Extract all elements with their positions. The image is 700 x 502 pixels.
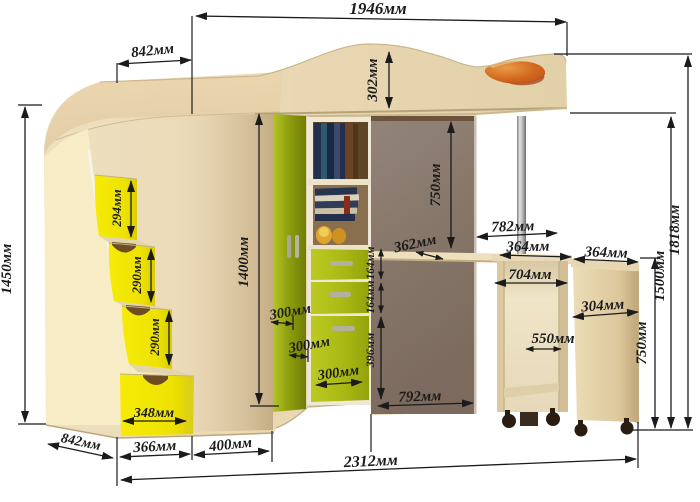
svg-text:290мм: 290мм [129,256,144,294]
svg-text:2312мм: 2312мм [342,452,398,471]
svg-text:364мм: 364мм [583,244,628,262]
svg-text:1450мм: 1450мм [0,244,15,295]
svg-text:304мм: 304мм [580,297,625,316]
svg-text:302мм: 302мм [365,58,381,102]
svg-text:1500мм: 1500мм [652,251,668,302]
svg-text:164мм: 164мм [365,246,377,279]
svg-text:704мм: 704мм [508,267,551,283]
svg-text:294мм: 294мм [109,189,124,227]
svg-text:782мм: 782мм [491,218,535,235]
svg-text:750мм: 750мм [428,163,444,206]
svg-text:550мм: 550мм [531,331,574,347]
svg-text:348мм: 348мм [133,406,175,421]
svg-text:364мм: 364мм [505,239,549,256]
svg-text:750мм: 750мм [634,321,650,364]
svg-text:792мм: 792мм [398,388,442,405]
svg-text:164мм: 164мм [365,280,377,313]
svg-text:290мм: 290мм [147,318,162,356]
svg-text:1818мм: 1818мм [667,205,683,256]
svg-text:1946мм: 1946мм [349,0,407,18]
svg-text:396мм: 396мм [363,333,377,368]
svg-text:1400мм: 1400мм [236,237,252,288]
svg-text:366мм: 366мм [132,438,177,456]
